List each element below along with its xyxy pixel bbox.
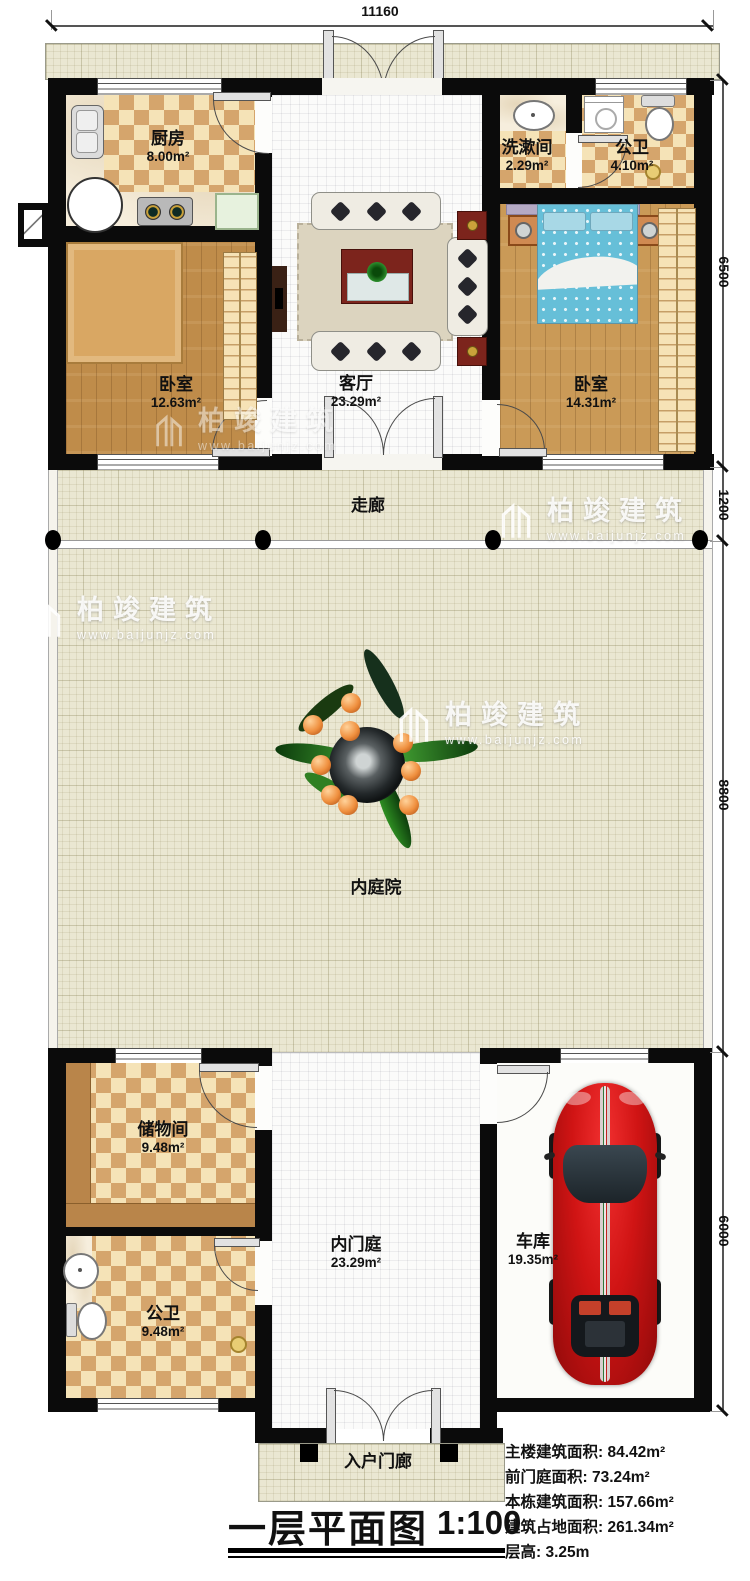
room-label-storage: 储物间9.48m² (103, 1120, 223, 1157)
wall (48, 1227, 272, 1236)
window (595, 78, 687, 95)
room-label-kitchen: 厨房8.00m² (108, 129, 228, 166)
bed-left (66, 242, 183, 364)
window (542, 454, 664, 470)
kitchen-sink (71, 105, 104, 159)
wall (258, 1428, 330, 1443)
watermark: 柏竣建筑www.baijunjz.com (150, 408, 342, 453)
nightstand (508, 215, 539, 246)
storage-cabinet (66, 1203, 255, 1228)
column (45, 530, 61, 550)
room-label-bedroom-right: 卧室14.31m² (531, 375, 651, 412)
stats-block: 主楼建筑面积: 84.42m² 前门庭面积: 73.24m² 本栋建筑面积: 1… (505, 1440, 747, 1565)
brand-logo-icon (495, 500, 537, 542)
floor-plan: 11160 (0, 0, 750, 1581)
brand-logo-icon (25, 599, 67, 641)
wall (48, 78, 66, 470)
coffee-table (341, 249, 413, 304)
sofa (311, 331, 441, 371)
door-leaf (499, 448, 547, 457)
dimension-right-8800: 8800 (716, 775, 732, 815)
window (115, 1048, 202, 1063)
sofa (311, 192, 441, 230)
courtyard-edge (703, 470, 713, 1052)
room-label-entry-porch: 入户门廊 (298, 1452, 458, 1472)
washing-machine (584, 96, 624, 133)
stat-line: 建筑占地面积: 261.34m² (505, 1515, 747, 1540)
dimension-right-1200: 1200 (716, 485, 732, 525)
door-opening (480, 1064, 497, 1124)
room-label-garage: 车库19.35m² (473, 1232, 593, 1269)
desk-monitor (275, 288, 283, 309)
closet-right (658, 208, 696, 452)
stat-line: 层高: 3.25m (505, 1540, 747, 1565)
rear-terrace-strip (45, 43, 720, 80)
washroom-sink (513, 100, 555, 131)
side-table (457, 211, 487, 240)
extension-line (713, 10, 714, 30)
dimension-right-6000: 6000 (716, 1211, 732, 1251)
courtyard-edge (48, 470, 58, 1052)
window (560, 1048, 649, 1063)
door-opening (322, 78, 442, 95)
flue-inner (24, 210, 42, 239)
floor-drain (230, 1336, 247, 1353)
watermark: 柏竣建筑www.baijunjz.com (495, 498, 691, 543)
drawing-title: 一层平面图 (228, 1498, 428, 1553)
bath-sink (63, 1253, 99, 1289)
side-table (457, 337, 487, 366)
sofa (447, 237, 488, 336)
room-label-courtyard: 内庭院 (316, 878, 436, 898)
watermark: 柏竣建筑www.baijunjz.com (393, 702, 589, 747)
dimension-line-top (51, 25, 714, 27)
door-opening (322, 454, 442, 470)
window (97, 1398, 219, 1412)
title-underline-thick (228, 1548, 505, 1553)
stat-line: 前门庭面积: 73.24m² (505, 1465, 747, 1490)
fridge (215, 193, 259, 230)
window (97, 454, 219, 470)
brand-logo-icon (150, 412, 188, 450)
wall (694, 78, 712, 470)
room-label-corridor: 走廊 (308, 496, 428, 516)
wall (694, 1048, 712, 1412)
room-label-washroom: 洗漱间2.29m² (467, 138, 587, 175)
door-opening (255, 1066, 272, 1130)
column (255, 530, 271, 550)
title-underline-thin (228, 1556, 505, 1558)
wall (480, 1398, 712, 1412)
room-label-bath-top: 公卫4.10m² (572, 138, 692, 175)
watermark: 柏竣建筑www.baijunjz.com (25, 597, 221, 642)
room-label-bath-bottom: 公卫9.48m² (103, 1304, 223, 1341)
stat-line: 主楼建筑面积: 84.42m² (505, 1440, 747, 1465)
brand-logo-icon (393, 704, 435, 746)
toilet-tank (66, 1303, 77, 1337)
bed-right (537, 204, 638, 324)
toilet-bowl (645, 107, 674, 141)
toilet-tank (641, 95, 675, 107)
dimension-right-6500: 6500 (716, 252, 732, 292)
window (97, 78, 222, 95)
stove (137, 197, 193, 226)
stat-line: 本栋建筑面积: 157.66m² (505, 1490, 747, 1515)
column (692, 530, 708, 550)
kitchen-table (67, 177, 123, 233)
room-label-inner-court: 内门庭23.29m² (296, 1235, 416, 1272)
dimension-top-label: 11160 (300, 3, 460, 19)
wall (482, 188, 712, 204)
